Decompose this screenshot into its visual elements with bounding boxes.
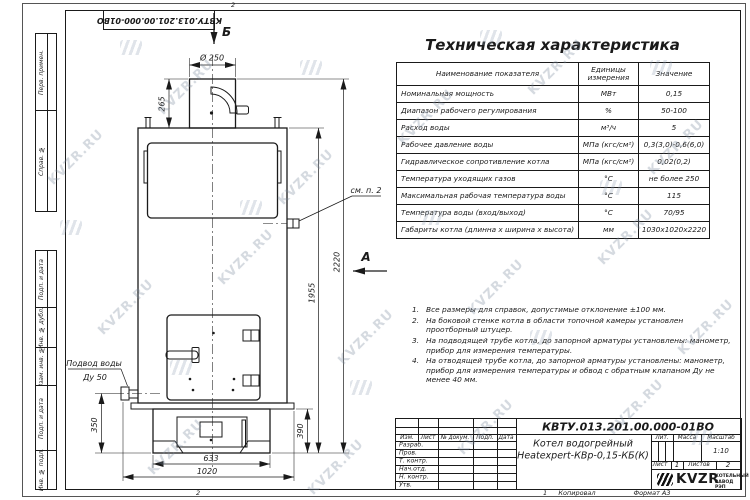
furnace-door [167, 315, 260, 400]
product-name-line1: Котел водогрейный [533, 439, 633, 450]
door-handle [166, 351, 198, 359]
row-name: Температура уходящих газов [397, 171, 579, 188]
product-name-line2: Heatexpert-КВр-0,15-КБ(К) [517, 451, 649, 462]
col-izm: Изм. [400, 435, 414, 441]
scale-label: Масштаб [707, 435, 735, 441]
lifting-stud-left [146, 118, 150, 129]
door-bolt [232, 389, 235, 392]
note-number: 1. [412, 305, 426, 315]
col-header-value: Значение [639, 63, 710, 86]
table-row: Диапазон рабочего регулирования%50-100 [397, 103, 710, 120]
table-row: Температура воды (вход/выход)°С70/95 [397, 205, 710, 222]
doc-number: КВТУ.013.201.00.000-01ВО [542, 420, 714, 433]
door-bolt [189, 378, 192, 381]
kvzr-logo-sub2: ЗАВОД РЭП [715, 480, 741, 491]
grid-line [418, 419, 419, 441]
grid-line [497, 419, 498, 489]
row-name: Расход воды [397, 120, 579, 137]
row-value: 50-100 [639, 103, 710, 120]
col-header-name: Наименование показателя [397, 63, 579, 86]
grid-line [665, 441, 666, 461]
mass-label: Масса [678, 435, 696, 441]
grid-line [396, 427, 516, 428]
damper-pivot [210, 111, 213, 114]
base-bolt [210, 439, 213, 442]
dim-633-label: 633 [203, 454, 218, 463]
row-prov: Пров. [399, 450, 417, 457]
table-row: Гидравлическое сопротивление котлаМПа (к… [397, 154, 710, 171]
callout-leader [299, 196, 352, 221]
dim-1020-label: 1020 [197, 467, 217, 476]
dim-2220-label: 2220 [333, 252, 342, 272]
section-a-label: А [360, 250, 370, 264]
sheet-value: 1 [675, 461, 679, 469]
sheet-label: Лист [653, 462, 668, 468]
row-value: не более 250 [639, 171, 710, 188]
dim-265-label: 265 [158, 96, 167, 111]
row-tkontr: Т. контр. [399, 458, 428, 465]
note-item: 1.Все размеры для справок, допустимые от… [412, 305, 732, 315]
grid-line [438, 419, 439, 489]
row-value: 70/95 [639, 205, 710, 222]
row-nkontr: Н. контр. [399, 474, 429, 481]
sheets-value: 2 [726, 461, 730, 469]
row-value: 1030х1020х2220 [639, 222, 710, 239]
kvzr-logo-text: KVZR [676, 471, 719, 487]
table-row: Расход водым³/ч5 [397, 120, 710, 137]
row-utv: Утв. [399, 482, 412, 489]
table-row: Температура уходящих газов°Сне более 250 [397, 171, 710, 188]
row-value: 5 [639, 120, 710, 137]
ash-opening-bar [242, 420, 246, 447]
inlet-leader [121, 369, 128, 386]
row-name: Габариты котла (длинна х ширина х высота… [397, 222, 579, 239]
ash-opening-inner [200, 422, 222, 437]
grid-line [701, 434, 702, 461]
table-row: Рабочее давление водыМПа (кгс/см²)0,3(3,… [397, 137, 710, 154]
col-list: Лист [421, 435, 436, 441]
col-data: Дата [498, 435, 513, 441]
row-name: Температура воды (вход/выход) [397, 205, 579, 222]
dim-1955-label: 1955 [308, 283, 317, 303]
note-item: 2.На боковой стенке котла в области топо… [412, 316, 732, 335]
damper-handle [211, 87, 237, 113]
note-text: На подводящей трубе котла, до запорной а… [426, 336, 732, 355]
grid-line [683, 461, 684, 469]
row-value: 0,3(3,0)-0,6(6,0) [639, 137, 710, 154]
note-item: 4.На отводящей трубе котла, до запорной … [412, 356, 732, 385]
row-unit: МПа (кгс/см²) [579, 154, 639, 171]
row-unit: % [579, 103, 639, 120]
note-text: На боковой стенке котла в области топочн… [426, 316, 732, 335]
dia-chimney-label: Ø 250 [199, 53, 224, 63]
base [153, 409, 270, 453]
note-item: 3.На подводящей трубе котла, до запорной… [412, 336, 732, 355]
kvzr-logo-icon [657, 473, 673, 486]
note-number: 3. [412, 336, 426, 355]
kvzr-logo-sub1: КОТЕЛЬНЫЙ [715, 474, 749, 479]
row-name: Номинальная мощность [397, 86, 579, 103]
row-razrab: Разраб. [399, 442, 423, 449]
dim-350-label: 350 [90, 417, 99, 432]
row-unit: м³/ч [579, 120, 639, 137]
row-unit: °С [579, 171, 639, 188]
note-text: На отводящей трубе котла, до запорной ар… [426, 356, 732, 385]
spec-table-title: Техническая характеристика [396, 36, 709, 54]
title-block: КВТУ.013.201.00.000-01ВО Изм. Лист № док… [395, 418, 742, 490]
col-podp: Подп. [476, 435, 494, 441]
door-bolt [212, 332, 215, 335]
table-row: Номинальная мощностьМВт0,15 [397, 86, 710, 103]
scale-value: 1:10 [713, 447, 729, 455]
water-inlet-pipe [129, 390, 138, 398]
row-unit: мм [579, 222, 639, 239]
dim-390-label: 390 [296, 423, 305, 438]
row-name: Рабочее давление воды [397, 137, 579, 154]
grid-line [658, 441, 659, 461]
grid-line [673, 434, 674, 461]
lit-label: Лит. [655, 435, 668, 441]
door-bolt [233, 378, 236, 381]
col-docnum: № докум. [441, 435, 470, 441]
grid-line [396, 481, 516, 482]
spec-table: Наименование показателя Единицы измерени… [396, 62, 710, 239]
note-text: Все размеры для справок, допустимые откл… [426, 305, 732, 315]
table-row: Максимальная рабочая температура воды°С1… [397, 188, 710, 205]
row-name: Гидравлическое сопротивление котла [397, 154, 579, 171]
sheets-label: Листов [688, 462, 710, 468]
grid-line [651, 441, 741, 442]
row-name: Диапазон рабочего регулирования [397, 103, 579, 120]
table-row: Габариты котла (длинна х ширина х высота… [397, 222, 710, 239]
row-value: 115 [639, 188, 710, 205]
col-header-units: Единицы измерения [579, 63, 639, 86]
drawing-sheet: КВТУ.013.201.00.000-01ВО Перв. примен. С… [0, 0, 750, 500]
callout-note2-label: см. п. 2 [351, 186, 382, 195]
spec-header-row: Наименование показателя Единицы измерени… [397, 63, 710, 86]
boiler-geometry [68, 13, 387, 481]
row-unit: МВт [579, 86, 639, 103]
grid-line [716, 461, 717, 469]
inlet-title-label: Подвод воды [66, 359, 122, 368]
section-b-label: Б [222, 25, 231, 39]
row-value: 0,02(0,2) [639, 154, 710, 171]
note-number: 2. [412, 316, 426, 335]
grid-line [671, 461, 672, 469]
row-unit: °С [579, 188, 639, 205]
row-unit: °С [579, 205, 639, 222]
notes-list: 1.Все размеры для справок, допустимые от… [412, 305, 732, 386]
row-name: Максимальная рабочая температура воды [397, 188, 579, 205]
grid-line [651, 469, 741, 470]
inlet-size-label: Ду 50 [82, 373, 107, 382]
row-unit: МПа (кгс/см²) [579, 137, 639, 154]
note-number: 4. [412, 356, 426, 385]
row-value: 0,15 [639, 86, 710, 103]
lifting-stud-right [275, 118, 279, 129]
grid-line [473, 419, 474, 489]
door-bolt [192, 389, 195, 392]
row-nachotd: Нач.отд. [399, 466, 427, 473]
chimney [190, 79, 236, 128]
